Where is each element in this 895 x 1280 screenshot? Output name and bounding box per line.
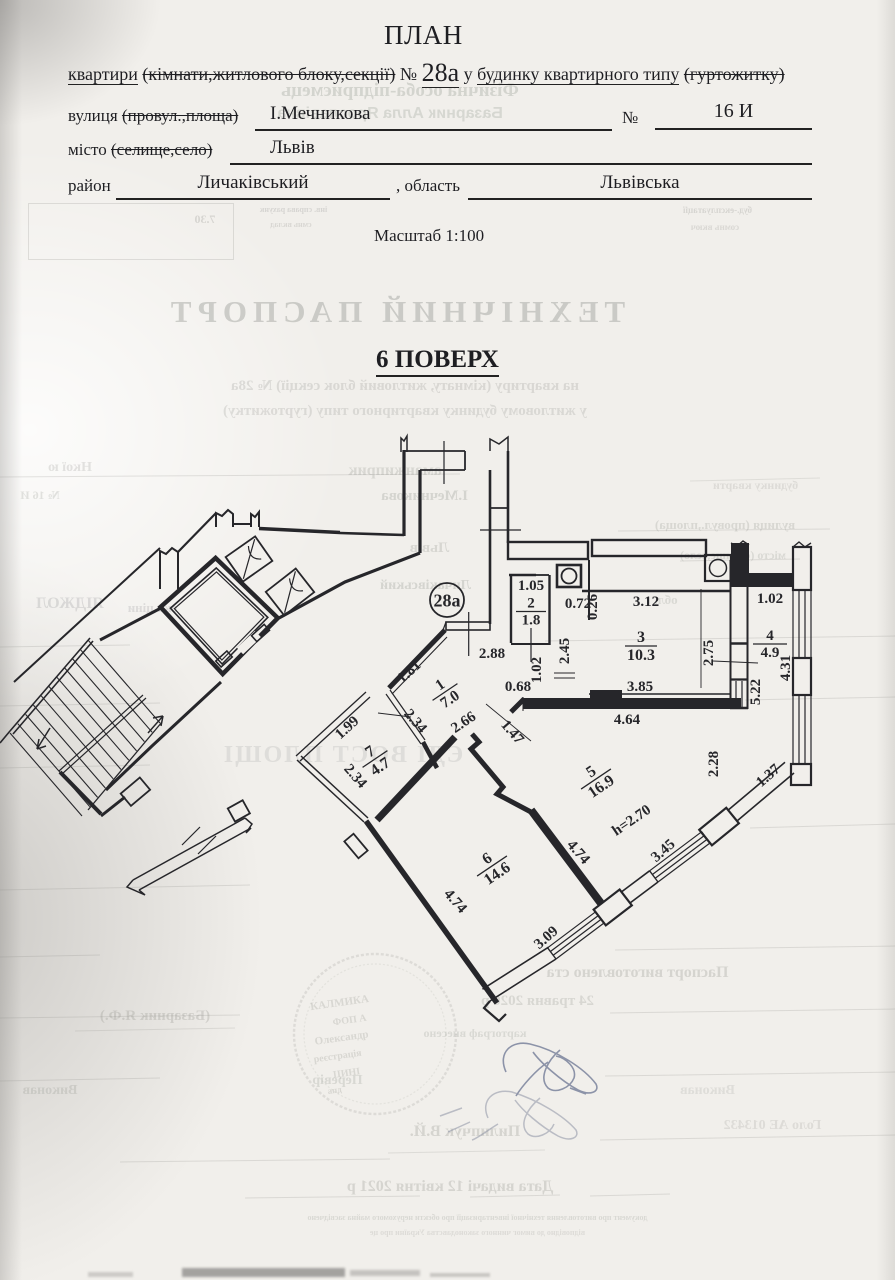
svg-text:3.45: 3.45	[648, 836, 678, 865]
svg-text:4.31: 4.31	[778, 655, 794, 681]
svg-text:1.02: 1.02	[757, 591, 783, 607]
svg-text:10.3: 10.3	[627, 647, 655, 664]
svg-text:1.37: 1.37	[753, 761, 784, 791]
svg-text:4: 4	[766, 628, 774, 644]
svg-text:0.72: 0.72	[565, 596, 591, 612]
svg-text:4.74: 4.74	[563, 837, 593, 868]
svg-text:ФОП А: ФОП А	[332, 1013, 368, 1029]
svg-text:5: 5	[583, 763, 599, 782]
svg-text:7.0: 7.0	[437, 687, 463, 712]
svg-text:4.74: 4.74	[440, 886, 470, 917]
svg-text:h=2.70: h=2.70	[609, 802, 654, 839]
svg-text:1.05: 1.05	[518, 578, 544, 594]
svg-text:1.02: 1.02	[529, 657, 545, 683]
svg-text:реєстрація: реєстрація	[313, 1048, 363, 1066]
svg-text:0.68: 0.68	[505, 679, 531, 695]
svg-text:14.6: 14.6	[481, 859, 514, 889]
svg-text:3.85: 3.85	[627, 679, 653, 695]
svg-text:3.09: 3.09	[531, 923, 561, 952]
svg-text:КАЛМИКА: КАЛМИКА	[310, 993, 370, 1013]
svg-text:Олександр: Олександр	[314, 1028, 369, 1047]
svg-text:1.99: 1.99	[332, 713, 362, 742]
svg-text:2.28: 2.28	[706, 751, 722, 777]
svg-text:2.66: 2.66	[448, 708, 479, 736]
svg-text:16.9: 16.9	[585, 772, 618, 802]
svg-text:5.22: 5.22	[748, 679, 764, 705]
svg-text:2.34: 2.34	[400, 706, 430, 737]
svg-text:2.75: 2.75	[701, 640, 717, 666]
svg-text:6: 6	[479, 850, 495, 869]
svg-text:4.64: 4.64	[614, 712, 641, 728]
svg-text:1: 1	[432, 676, 448, 694]
svg-text:1.8: 1.8	[522, 613, 541, 629]
svg-text:4.9: 4.9	[761, 645, 780, 661]
svg-text:1.81: 1.81	[394, 657, 424, 686]
svg-text:2.45: 2.45	[557, 638, 573, 664]
svg-text:2: 2	[527, 596, 535, 612]
svg-text:0.26: 0.26	[585, 593, 601, 620]
svg-text:3: 3	[637, 629, 645, 646]
svg-text:2.88: 2.88	[479, 646, 505, 662]
